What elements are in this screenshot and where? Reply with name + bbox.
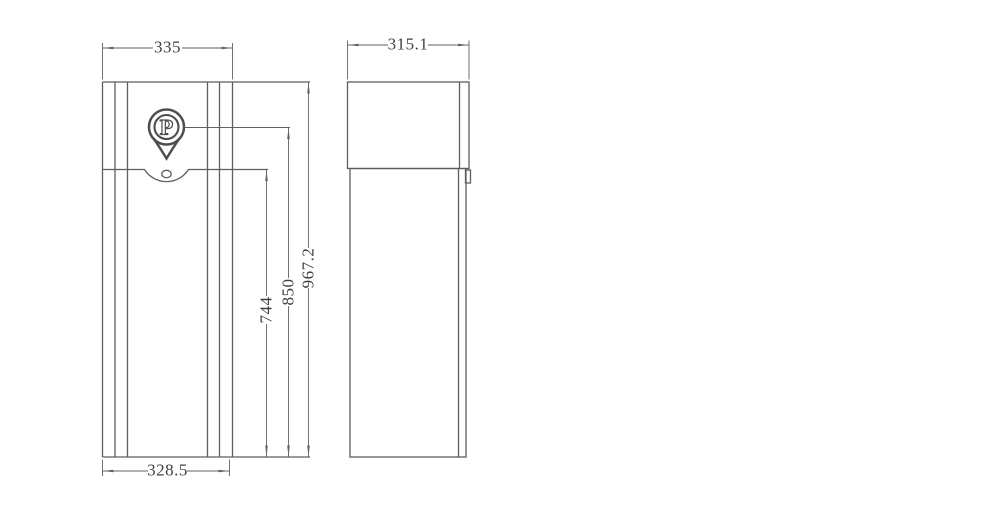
parking-logo: P [149, 110, 184, 159]
dim-text-logo-height: 850 [279, 279, 298, 306]
dim-text-side-top-width: 315.1 [388, 35, 429, 54]
dim-front-bottom-width: 328.5 [103, 460, 230, 480]
dim-text-front-bottom-width: 328.5 [147, 461, 188, 480]
dim-side-top-width: 315.1 [348, 35, 470, 80]
technical-drawing-canvas: P 335 [0, 0, 994, 513]
dim-total-height: 967.2 [299, 83, 318, 457]
sensor-oval [162, 170, 171, 177]
front-view: P [103, 82, 311, 457]
dim-text-total-height: 967.2 [299, 248, 318, 289]
side-view [348, 82, 471, 457]
dim-body-height: 744 [257, 170, 276, 457]
logo-letter-p: P [160, 115, 173, 140]
dim-logo-height: 850 [279, 128, 298, 457]
dim-text-front-top-width: 335 [154, 38, 181, 57]
dim-text-body-height: 744 [257, 297, 276, 324]
dim-front-top-width: 335 [103, 38, 233, 80]
side-body-outline [350, 169, 466, 458]
parking-barrier-drawing: P 335 [0, 0, 994, 513]
dimension-annotations: 335 315.1 328.5 744 [103, 35, 470, 480]
side-head-outline [348, 82, 470, 169]
